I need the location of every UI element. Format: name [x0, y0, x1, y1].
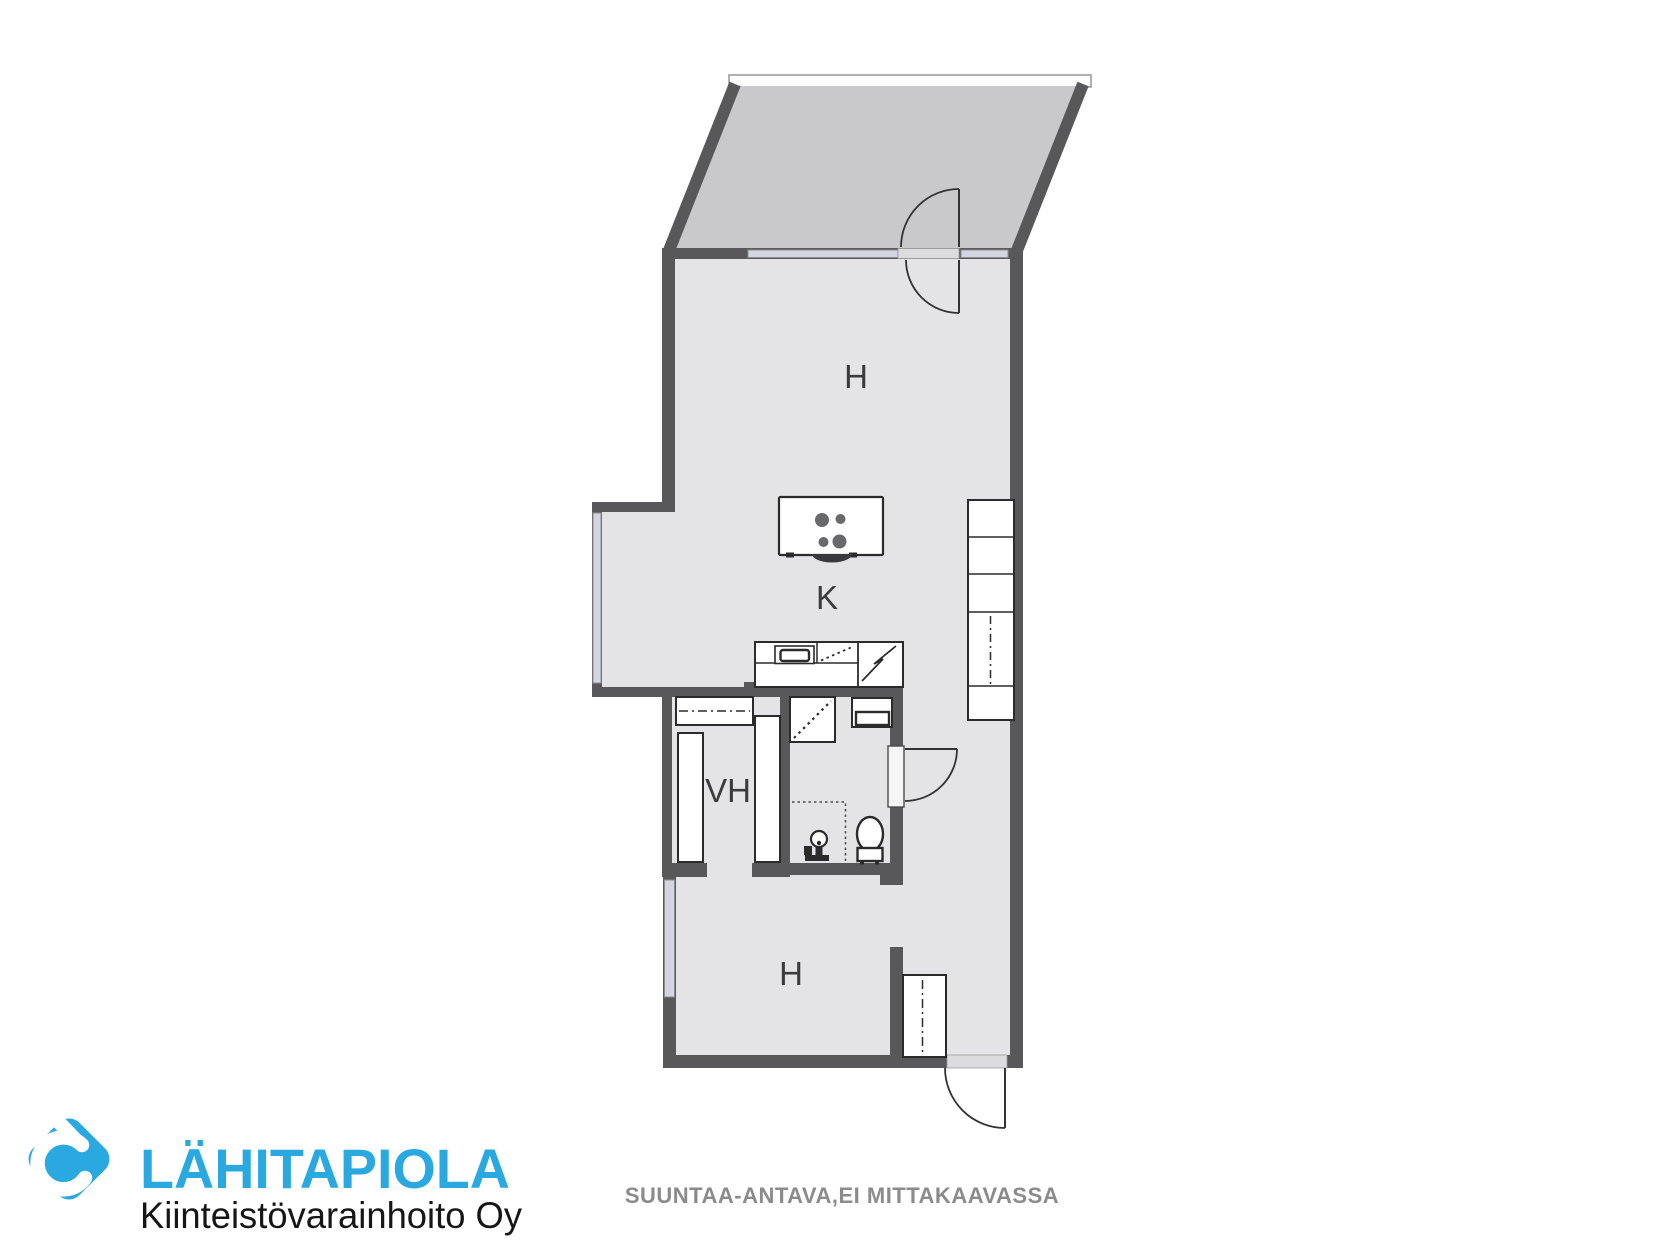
wall-segment — [880, 863, 901, 885]
window-icon — [665, 880, 675, 997]
toilet-icon — [857, 817, 883, 865]
room-label-upper-h: H — [844, 358, 868, 395]
shower-icon — [790, 697, 835, 742]
wall-segment — [752, 863, 790, 877]
balcony — [668, 75, 1091, 253]
logo-subtitle: Kiinteistövarainhoito Oy — [140, 1195, 522, 1236]
kitchen-counter — [755, 642, 903, 687]
room-label-lower-h: H — [779, 955, 803, 992]
wall-segment — [592, 502, 673, 512]
tall-cabinet-icon — [968, 500, 1014, 720]
stove-island-icon — [779, 497, 883, 563]
wall-segment — [662, 248, 675, 512]
window-icon — [748, 250, 898, 258]
balcony-railing-icon — [729, 75, 1091, 87]
window-icon — [961, 250, 1008, 258]
lahitapiola-diamond-icon — [22, 1112, 115, 1205]
window-icon — [593, 513, 601, 683]
logo: LÄHITAPIOLA Kiinteistövarainhoito Oy — [22, 1112, 522, 1236]
entry-closet-icon — [903, 975, 946, 1057]
floorplan-canvas: H K VH H SUUNTAA-ANTAVA,EI MITTAKAAVASSA… — [0, 0, 1680, 1260]
bathroom-door-opening — [888, 746, 904, 807]
room-label-kitchen: K — [816, 579, 838, 616]
wall-segment — [780, 687, 790, 875]
entry-door-threshold — [947, 1055, 1007, 1068]
washbasin-icon — [852, 698, 892, 727]
entry-door-swing-icon — [945, 1068, 1005, 1128]
balcony-floor — [673, 86, 1081, 249]
wall-segment — [663, 863, 707, 877]
wall-segment — [890, 947, 903, 1057]
wall-segment — [662, 687, 672, 877]
logo-company-name: LÄHITAPIOLA — [140, 1137, 510, 1200]
disclaimer-note: SUUNTAA-ANTAVA,EI MITTAKAAVASSA — [625, 1183, 1059, 1208]
balcony-door-threshold — [898, 249, 959, 259]
kitchen-sink-icon — [775, 646, 814, 664]
room-label-closet: VH — [705, 772, 751, 809]
